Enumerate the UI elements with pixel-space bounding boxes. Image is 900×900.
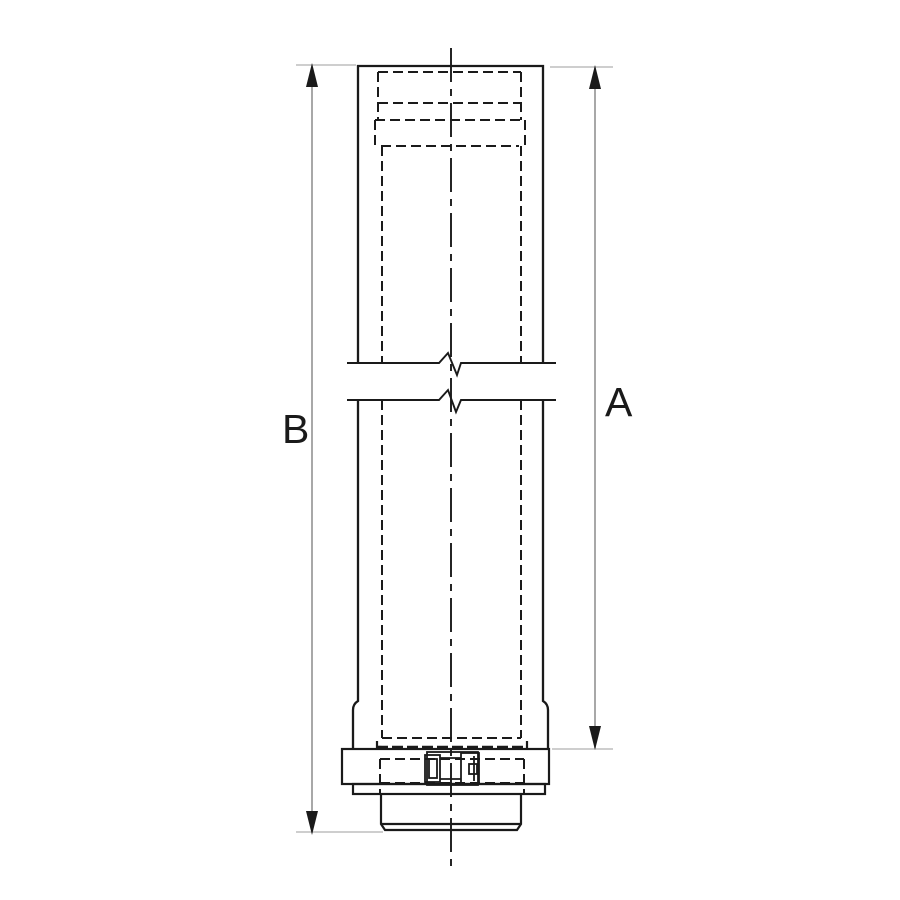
dimension-extension-lines	[296, 65, 613, 832]
spigot-outlet-outline	[381, 794, 521, 830]
dimension-label-b: B	[282, 406, 309, 452]
arrow-a-bottom	[589, 726, 601, 750]
dimension-arrowheads	[306, 63, 601, 835]
collar-clasp-detail	[425, 752, 479, 785]
dimension-label-a: A	[605, 379, 633, 425]
arrow-b-top	[306, 63, 318, 87]
arrow-a-top	[589, 65, 601, 89]
pipe-section-drawing: A B	[0, 0, 900, 900]
hidden-lines-collar-interior	[380, 759, 524, 794]
technical-drawing-page: A B	[0, 0, 900, 900]
locking-collar-band	[342, 749, 549, 794]
hidden-lines-upper-socket	[375, 72, 525, 146]
